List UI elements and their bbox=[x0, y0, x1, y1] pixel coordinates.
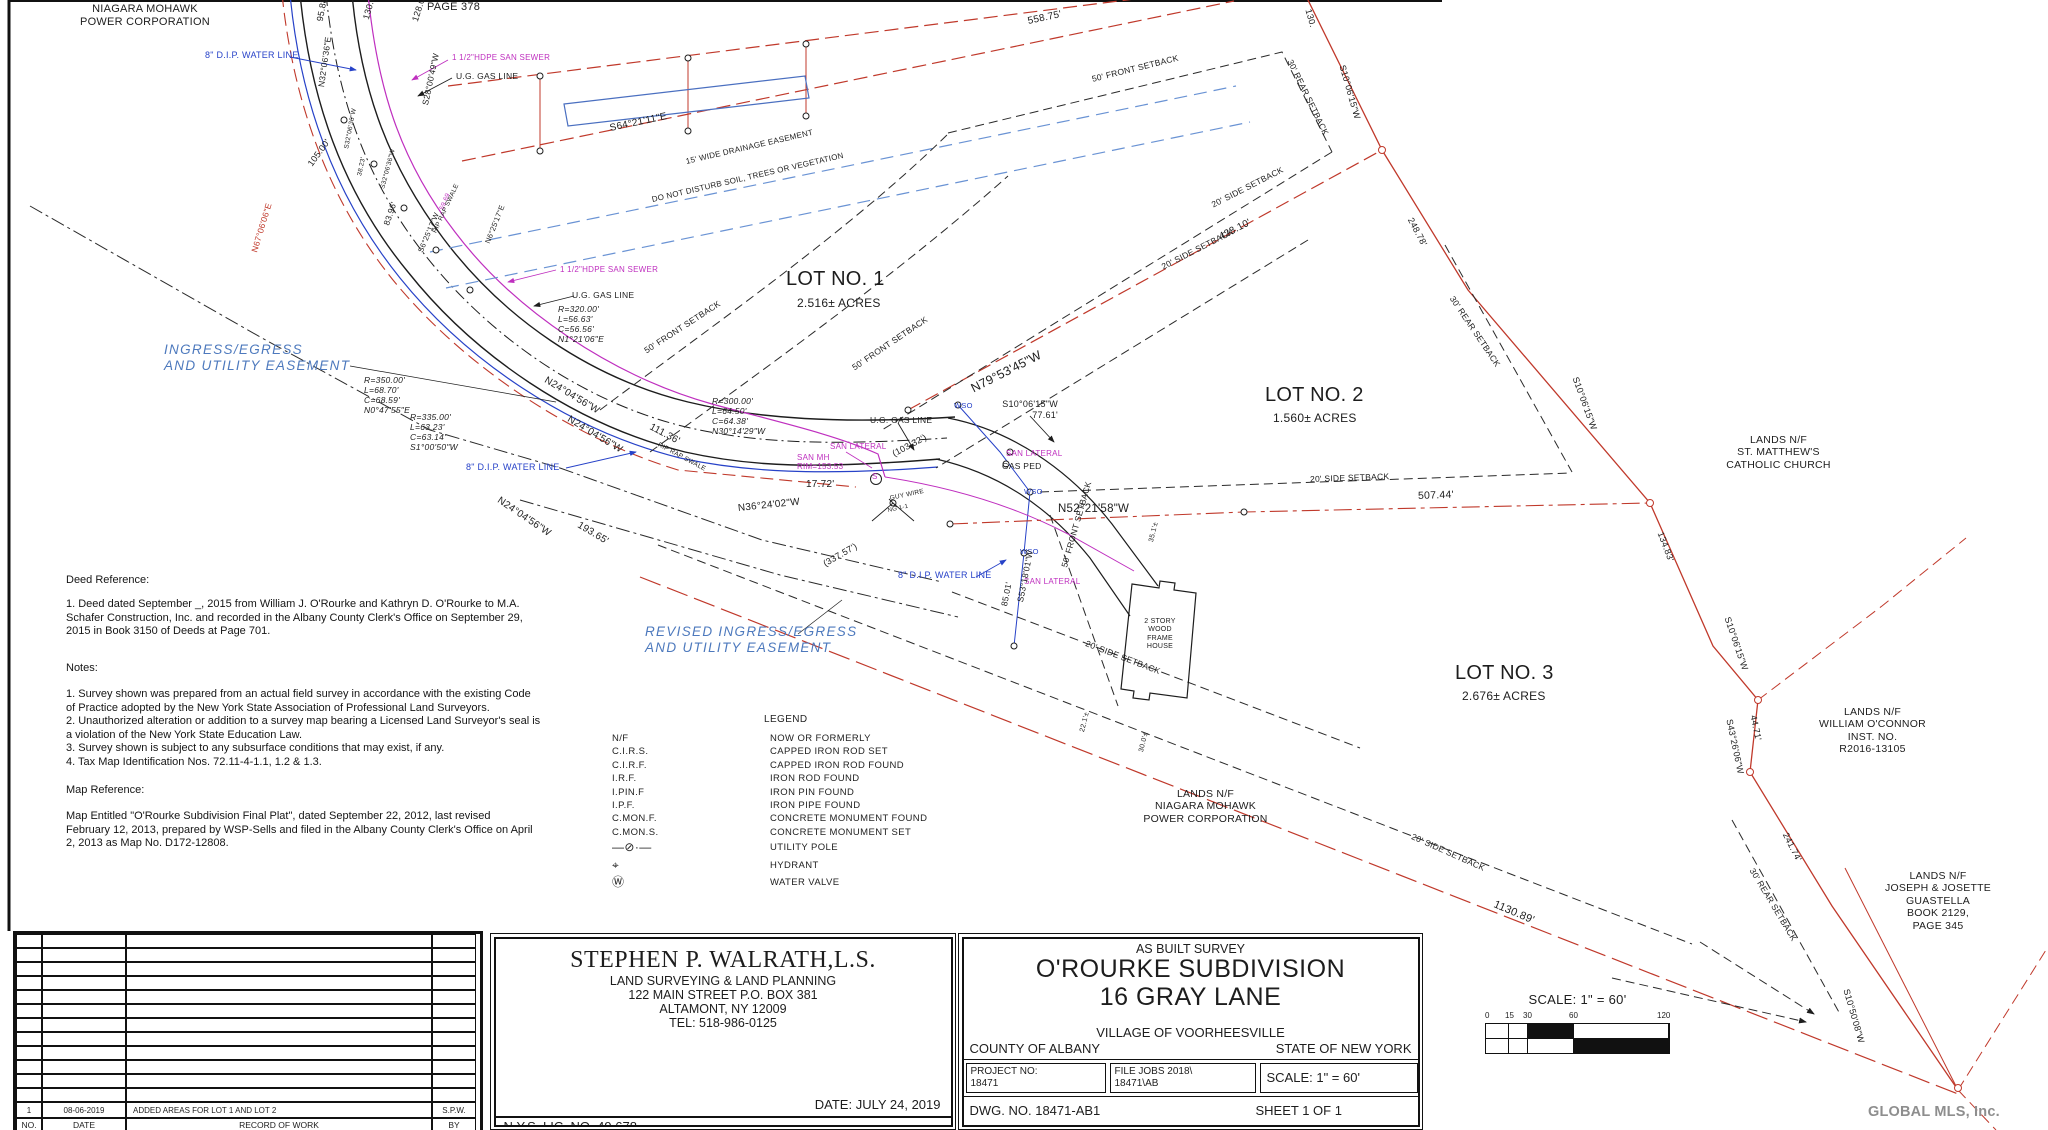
revision-cell bbox=[16, 1074, 42, 1088]
revision-cell bbox=[432, 990, 476, 1004]
revision-cell bbox=[42, 948, 126, 962]
graphic-scale: SCALE: 1" = 60' 0153060120 bbox=[1485, 992, 1670, 1054]
map-label: SAN LATERAL bbox=[830, 442, 886, 451]
revision-cell bbox=[16, 1060, 42, 1074]
revision-cell bbox=[16, 1088, 42, 1102]
scale-bar-row-top bbox=[1486, 1024, 1669, 1038]
legend-rows: N/FNOW OR FORMERLYC.I.R.S.CAPPED IRON RO… bbox=[612, 732, 1072, 892]
revision-row: NO.DATERECORD OF WORKBY bbox=[16, 1118, 480, 1130]
revision-cell bbox=[16, 934, 42, 948]
map-label: U.G. GAS LINE bbox=[572, 290, 634, 300]
deed-reference-body: 1. Deed dated September _, 2015 from Wil… bbox=[66, 598, 606, 639]
revision-row bbox=[16, 1074, 480, 1088]
revision-cell bbox=[432, 948, 476, 962]
revision-table: 108-06-2019ADDED AREAS FOR LOT 1 AND LOT… bbox=[13, 931, 483, 1130]
revision-cell: 1 bbox=[16, 1102, 42, 1118]
revision-row bbox=[16, 1018, 480, 1032]
legend-row: C.MON.S.CONCRETE MONUMENT SET bbox=[612, 826, 1072, 839]
revision-cell bbox=[126, 934, 432, 948]
legend-abbr: C.I.R.F. bbox=[612, 759, 770, 772]
revision-cell bbox=[16, 1032, 42, 1046]
file-jobs-value: 18471\AB bbox=[1115, 1078, 1251, 1090]
revision-cell bbox=[432, 1046, 476, 1060]
revision-cell bbox=[42, 1018, 126, 1032]
revision-cell bbox=[432, 1074, 476, 1088]
legend-symbol-row: —⊘·—UTILITY POLE bbox=[612, 839, 1072, 857]
legend-meaning: WATER VALVE bbox=[770, 874, 840, 892]
legend-meaning: CAPPED IRON ROD SET bbox=[770, 745, 888, 758]
revision-cell: S.P.W. bbox=[432, 1102, 476, 1118]
revision-cell bbox=[16, 948, 42, 962]
map-label: LANDS N/F NIAGARA MOHAWK POWER CORPORATI… bbox=[1118, 788, 1293, 825]
map-label: S bbox=[872, 472, 878, 481]
revision-cell bbox=[432, 1018, 476, 1032]
legend-meaning: NOW OR FORMERLY bbox=[770, 732, 871, 745]
revision-row bbox=[16, 1088, 480, 1102]
revision-cell: BY bbox=[432, 1118, 476, 1130]
sheet-number: SHEET 1 OF 1 bbox=[1256, 1103, 1342, 1118]
project-number-value: 18471 bbox=[971, 1078, 1101, 1090]
revision-cell bbox=[16, 976, 42, 990]
street-address: 16 GRAY LANE bbox=[964, 983, 1418, 1012]
map-label: 2 STORY WOOD FRAME HOUSE bbox=[1128, 618, 1192, 651]
revision-cell: RECORD OF WORK bbox=[126, 1118, 432, 1130]
map-label: R=350.00' L=68.70' C=68.59' N0°47'55"E bbox=[364, 375, 410, 415]
subdivision-title: O'ROURKE SUBDIVISION bbox=[964, 955, 1418, 984]
graphic-scale-bar bbox=[1485, 1023, 1670, 1054]
deed-reference-title: Deed Reference: bbox=[66, 574, 606, 588]
scale-tick-label: 120 bbox=[1657, 1011, 1670, 1020]
revision-cell bbox=[432, 1032, 476, 1046]
scale-bar-row-bottom bbox=[1486, 1038, 1669, 1053]
revision-cell bbox=[42, 1074, 126, 1088]
scale-bar-segment bbox=[1486, 1039, 1509, 1053]
legend-meaning: IRON PIN FOUND bbox=[770, 786, 854, 799]
legend-abbr: N/F bbox=[612, 732, 770, 745]
revision-cell bbox=[42, 976, 126, 990]
file-jobs-cell: FILE JOBS 2018\ 18471\AB bbox=[1110, 1063, 1256, 1093]
legend-row: I.R.F.IRON ROD FOUND bbox=[612, 772, 1072, 785]
mls-watermark: GLOBAL MLS, Inc. bbox=[1868, 1104, 2000, 1120]
legend-abbr: I.P.F. bbox=[612, 799, 770, 812]
revision-cell bbox=[432, 1060, 476, 1074]
legend-row: I.PIN.FIRON PIN FOUND bbox=[612, 786, 1072, 799]
project-number-cell: PROJECT NO: 18471 bbox=[966, 1063, 1106, 1093]
map-label: 1 1/2"HDPE SAN SEWER bbox=[560, 265, 658, 274]
map-label: 1.560± ACRES bbox=[1273, 411, 1357, 425]
revision-cell bbox=[16, 990, 42, 1004]
revision-cell bbox=[126, 1032, 432, 1046]
revision-row bbox=[16, 990, 480, 1004]
scale-bar-segment bbox=[1486, 1024, 1509, 1038]
legend-row: C.I.R.S.CAPPED IRON ROD SET bbox=[612, 745, 1072, 758]
map-label: LANDS N/F ST. MATTHEW'S CATHOLIC CHURCH bbox=[1706, 434, 1851, 471]
map-label: LOT NO. 1 bbox=[786, 268, 885, 292]
scale-cell: SCALE: 1" = 60' bbox=[1260, 1063, 1418, 1093]
revision-cell bbox=[432, 962, 476, 976]
map-label: PAGE 378 bbox=[427, 1, 480, 14]
scale-bar-segment bbox=[1509, 1024, 1528, 1038]
revision-cell bbox=[432, 934, 476, 948]
scale-bar-segment bbox=[1528, 1039, 1574, 1053]
revision-cell bbox=[42, 1060, 126, 1074]
dwg-number: DWG. NO. 18471-AB1 bbox=[970, 1103, 1101, 1118]
map-label: 1 1/2"HDPE SAN SEWER bbox=[452, 53, 550, 62]
revision-cell bbox=[126, 990, 432, 1004]
notes-title: Notes: bbox=[66, 662, 606, 676]
map-label: SAN LATERAL bbox=[1024, 577, 1080, 586]
legend-meaning: HYDRANT bbox=[770, 857, 819, 875]
notes-body: 1. Survey shown was prepared from an act… bbox=[66, 688, 606, 769]
legend-meaning: CONCRETE MONUMENT FOUND bbox=[770, 812, 927, 825]
scale-tick-label: 15 bbox=[1505, 1011, 1514, 1020]
map-label: WSO bbox=[1024, 488, 1043, 497]
firm-title-block: STEPHEN P. WALRATH,L.S. LAND SURVEYING &… bbox=[490, 933, 956, 1130]
revision-cell bbox=[126, 1074, 432, 1088]
map-label: 8" D.I.P. WATER LINE bbox=[898, 570, 992, 581]
scale-bar-segment bbox=[1528, 1024, 1574, 1038]
revision-row bbox=[16, 1004, 480, 1018]
village-line: VILLAGE OF VOORHEESVILLE bbox=[964, 1025, 1418, 1040]
map-label: 507.44' bbox=[1418, 489, 1454, 503]
map-label: GAS PED bbox=[1002, 461, 1042, 471]
revision-cell: 08-06-2019 bbox=[42, 1102, 126, 1118]
scale-tick-label: 60 bbox=[1569, 1011, 1578, 1020]
revision-cell bbox=[126, 1088, 432, 1102]
map-label: SAN MH RIM=153.53 bbox=[797, 453, 843, 472]
map-label: R=335.00' L=63.23' C=63.14' S1°00'50"W bbox=[410, 412, 458, 452]
revision-row bbox=[16, 1032, 480, 1046]
map-reference-title: Map Reference: bbox=[66, 784, 606, 798]
revision-cell bbox=[16, 1004, 42, 1018]
map-reference-body: Map Entitled "O'Rourke Subdivision Final… bbox=[66, 810, 606, 851]
legend-abbr: I.PIN.F bbox=[612, 786, 770, 799]
legend-symbol-row: ⌖HYDRANT bbox=[612, 857, 1072, 875]
project-number-label: PROJECT NO: bbox=[971, 1066, 1101, 1078]
revision-cell bbox=[126, 976, 432, 990]
revision-cell bbox=[16, 1018, 42, 1032]
revision-cell bbox=[432, 1088, 476, 1102]
map-label: U.G. GAS LINE bbox=[870, 415, 932, 425]
scale-tick-label: 30 bbox=[1523, 1011, 1532, 1020]
license-number: N.Y.S. LIC. NO. 49,678 bbox=[504, 1119, 637, 1127]
scale-bar-segment bbox=[1574, 1039, 1669, 1053]
survey-type: AS BUILT SURVEY bbox=[964, 942, 1418, 956]
legend-meaning: UTILITY POLE bbox=[770, 839, 838, 857]
revision-cell: DATE bbox=[42, 1118, 126, 1130]
scale-bar-segment bbox=[1574, 1024, 1669, 1038]
map-label: 2.516± ACRES bbox=[797, 296, 881, 310]
revision-cell bbox=[16, 962, 42, 976]
revision-row bbox=[16, 1060, 480, 1074]
legend-abbr: C.MON.F. bbox=[612, 812, 770, 825]
map-label: 2.676± ACRES bbox=[1462, 689, 1546, 703]
legend-meaning: IRON ROD FOUND bbox=[770, 772, 860, 785]
map-label: U.G. GAS LINE bbox=[456, 71, 518, 81]
revision-cell bbox=[126, 962, 432, 976]
revision-row bbox=[16, 934, 480, 948]
graphic-scale-caption: SCALE: 1" = 60' bbox=[1485, 992, 1670, 1007]
scale-tick-label: 0 bbox=[1485, 1011, 1489, 1020]
map-label: LANDS N/F JOSEPH & JOSETTE GUASTELLA BOO… bbox=[1858, 870, 2018, 932]
revision-cell bbox=[126, 1018, 432, 1032]
firm-phone: TEL: 518-986-0125 bbox=[496, 1016, 951, 1030]
map-label: N52°21'58"W bbox=[1058, 503, 1129, 517]
legend-symbol-row: ⓌWATER VALVE bbox=[612, 874, 1072, 892]
revision-cell bbox=[126, 1004, 432, 1018]
legend-meaning: IRON PIPE FOUND bbox=[770, 799, 860, 812]
revision-cell bbox=[42, 990, 126, 1004]
file-jobs-label: FILE JOBS 2018\ bbox=[1115, 1066, 1251, 1078]
legend-abbr: C.I.R.S. bbox=[612, 745, 770, 758]
map-label: S10°06'15"W 77.61' bbox=[996, 399, 1058, 420]
revision-cell bbox=[126, 948, 432, 962]
project-title-block: AS BUILT SURVEY O'ROURKE SUBDIVISION 16 … bbox=[958, 933, 1423, 1130]
revision-cell bbox=[42, 1088, 126, 1102]
legend-meaning: CONCRETE MONUMENT SET bbox=[770, 826, 911, 839]
revision-row bbox=[16, 948, 480, 962]
map-label: SAN LATERAL bbox=[1006, 449, 1062, 458]
revision-cell bbox=[126, 1060, 432, 1074]
water-valve-icon: Ⓦ bbox=[612, 874, 770, 892]
revision-cell bbox=[126, 1046, 432, 1060]
revision-row bbox=[16, 1046, 480, 1060]
map-label: R=320.00' L=56.63' C=56.56' N1°21'06"E bbox=[558, 304, 604, 344]
map-label: LOT NO. 2 bbox=[1265, 384, 1364, 408]
firm-address2: ALTAMONT, NY 12009 bbox=[496, 1002, 951, 1016]
revision-row bbox=[16, 976, 480, 990]
firm-tagline: LAND SURVEYING & LAND PLANNING bbox=[496, 974, 951, 988]
legend-row: C.MON.F.CONCRETE MONUMENT FOUND bbox=[612, 812, 1072, 825]
utility-pole-icon: —⊘·— bbox=[612, 839, 770, 857]
legend-title: LEGEND bbox=[764, 714, 1072, 725]
revision-cell bbox=[42, 934, 126, 948]
revision-cell bbox=[42, 1004, 126, 1018]
hydrant-icon: ⌖ bbox=[612, 857, 770, 875]
map-label: 17.72' bbox=[806, 479, 834, 491]
map-label: 8" D.I.P. WATER LINE bbox=[466, 462, 560, 473]
revision-cell bbox=[42, 962, 126, 976]
legend-row: I.P.F.IRON PIPE FOUND bbox=[612, 799, 1072, 812]
firm-address1: 122 MAIN STREET P.O. BOX 381 bbox=[496, 988, 951, 1002]
map-label: REVISED INGRESS/EGRESS AND UTILITY EASEM… bbox=[645, 624, 857, 656]
revision-cell: NO. bbox=[16, 1118, 42, 1130]
map-label: LANDS N/F WILLIAM O'CONNOR INST. NO. R20… bbox=[1800, 706, 1945, 756]
legend-meaning: CAPPED IRON ROD FOUND bbox=[770, 759, 904, 772]
map-label: LOT NO. 3 bbox=[1455, 662, 1554, 686]
survey-date: DATE: JULY 24, 2019 bbox=[815, 1097, 941, 1112]
revision-cell bbox=[432, 1004, 476, 1018]
firm-name: STEPHEN P. WALRATH,L.S. bbox=[496, 947, 951, 974]
legend: LEGEND N/FNOW OR FORMERLYC.I.R.S.CAPPED … bbox=[612, 714, 1072, 892]
legend-row: C.I.R.F.CAPPED IRON ROD FOUND bbox=[612, 759, 1072, 772]
legend-row: N/FNOW OR FORMERLY bbox=[612, 732, 1072, 745]
revision-cell bbox=[432, 976, 476, 990]
legend-abbr: C.MON.S. bbox=[612, 826, 770, 839]
map-label: 8" D.I.P. WATER LINE bbox=[205, 50, 299, 61]
revision-cell: ADDED AREAS FOR LOT 1 AND LOT 2 bbox=[126, 1102, 432, 1118]
scale-bar-segment bbox=[1509, 1039, 1528, 1053]
survey-plat-sheet: NIAGARA MOHAWK POWER CORPORATIONPAGE 378… bbox=[0, 0, 2048, 1130]
legend-abbr: I.R.F. bbox=[612, 772, 770, 785]
revision-cell bbox=[16, 1046, 42, 1060]
map-label: NIAGARA MOHAWK POWER CORPORATION bbox=[75, 3, 215, 29]
map-label: R=300.00' L=64.50' C=64.38' N30°14'29"W bbox=[712, 396, 765, 436]
revision-row: 108-06-2019ADDED AREAS FOR LOT 1 AND LOT… bbox=[16, 1102, 480, 1118]
map-label: INGRESS/EGRESS AND UTILITY EASEMENT bbox=[164, 342, 350, 374]
graphic-scale-ticks: 0153060120 bbox=[1485, 1011, 1670, 1023]
county-line: COUNTY OF ALBANY bbox=[970, 1041, 1101, 1056]
state-line: STATE OF NEW YORK bbox=[1276, 1041, 1412, 1056]
revision-row bbox=[16, 962, 480, 976]
revision-cell bbox=[42, 1032, 126, 1046]
map-label: WSO bbox=[954, 402, 973, 411]
revision-cell bbox=[42, 1046, 126, 1060]
